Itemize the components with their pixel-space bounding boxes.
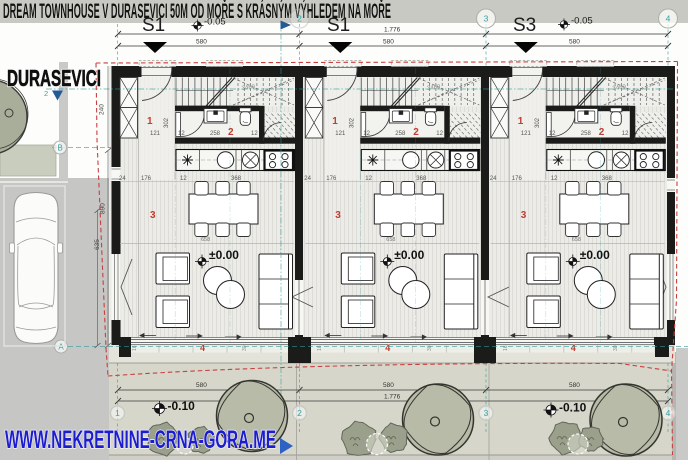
svg-text:2: 2 (599, 127, 605, 138)
svg-text:30: 30 (613, 345, 619, 351)
svg-text:3: 3 (150, 210, 156, 221)
svg-text:2: 2 (413, 127, 419, 138)
svg-text:258: 258 (581, 131, 592, 137)
svg-text:-0.05: -0.05 (571, 16, 593, 27)
svg-text:302: 302 (349, 117, 355, 128)
svg-text:12: 12 (622, 131, 629, 137)
svg-text:12: 12 (251, 131, 258, 137)
svg-text:12: 12 (365, 176, 372, 182)
svg-text:2: 2 (228, 127, 234, 138)
svg-text:1: 1 (518, 116, 524, 127)
svg-text:658: 658 (386, 237, 395, 243)
svg-text:580: 580 (196, 382, 207, 389)
svg-text:2: 2 (297, 14, 302, 24)
svg-text:658: 658 (572, 237, 581, 243)
svg-text:16: 16 (132, 345, 138, 351)
svg-text:-0.05: -0.05 (204, 17, 226, 28)
svg-text:580: 580 (383, 39, 394, 46)
svg-text:12: 12 (363, 131, 370, 137)
svg-text:1: 1 (332, 116, 338, 127)
svg-text:2: 2 (297, 408, 302, 418)
svg-text:24: 24 (490, 176, 497, 182)
svg-text:S1: S1 (327, 15, 350, 36)
svg-text:176: 176 (512, 176, 523, 182)
svg-text:±0.00: ±0.00 (209, 248, 239, 262)
svg-text:12: 12 (551, 176, 558, 182)
svg-text:-0.10: -0.10 (559, 401, 587, 415)
svg-text:3: 3 (484, 408, 489, 418)
svg-text:-0.10: -0.10 (168, 399, 196, 413)
svg-text:WWW.NEKRETNINE-CRNA-GORA.ME: WWW.NEKRETNINE-CRNA-GORA.ME (5, 426, 276, 454)
svg-text:635: 635 (94, 239, 101, 250)
svg-text:121: 121 (150, 131, 161, 137)
svg-text:B: B (57, 144, 62, 153)
svg-text:24: 24 (119, 176, 126, 182)
svg-text:16: 16 (317, 345, 323, 351)
svg-text:A: A (58, 343, 64, 352)
svg-text:258: 258 (395, 131, 406, 137)
svg-text:4: 4 (666, 408, 671, 418)
svg-text:16: 16 (503, 345, 509, 351)
svg-text:302: 302 (164, 117, 170, 128)
svg-text:580: 580 (569, 382, 580, 389)
svg-text:±0.00: ±0.00 (580, 248, 610, 262)
svg-text:580: 580 (569, 39, 580, 46)
svg-text:3: 3 (335, 210, 341, 221)
svg-text:1.776: 1.776 (384, 27, 401, 34)
svg-text:12: 12 (549, 131, 556, 137)
svg-text:12: 12 (436, 131, 443, 137)
svg-text:121: 121 (521, 131, 532, 137)
svg-text:DURASEVICI: DURASEVICI (7, 65, 101, 91)
svg-text:302: 302 (535, 117, 541, 128)
svg-text:580: 580 (383, 382, 394, 389)
svg-text:12: 12 (180, 176, 187, 182)
svg-text:240: 240 (99, 104, 106, 115)
svg-text:3: 3 (521, 210, 527, 221)
svg-text:1.776: 1.776 (384, 394, 401, 401)
svg-text:1: 1 (147, 116, 153, 127)
svg-text:4: 4 (200, 343, 205, 353)
svg-text:30: 30 (242, 345, 248, 351)
svg-text:580: 580 (196, 39, 207, 46)
svg-text:24: 24 (304, 176, 311, 182)
svg-text:S3: S3 (513, 15, 536, 36)
svg-text:S1: S1 (142, 15, 165, 36)
svg-text:4: 4 (385, 343, 390, 353)
svg-text:176: 176 (326, 176, 337, 182)
svg-text:3: 3 (484, 14, 489, 24)
svg-text:1: 1 (115, 408, 120, 418)
svg-text:176: 176 (141, 176, 152, 182)
svg-text:4: 4 (666, 14, 671, 24)
svg-text:30: 30 (427, 345, 433, 351)
svg-text:258: 258 (210, 131, 221, 137)
svg-text:12: 12 (178, 131, 185, 137)
svg-text:658: 658 (201, 237, 210, 243)
svg-text:±0.00: ±0.00 (394, 248, 424, 262)
svg-text:4: 4 (571, 343, 576, 353)
svg-text:121: 121 (335, 131, 346, 137)
